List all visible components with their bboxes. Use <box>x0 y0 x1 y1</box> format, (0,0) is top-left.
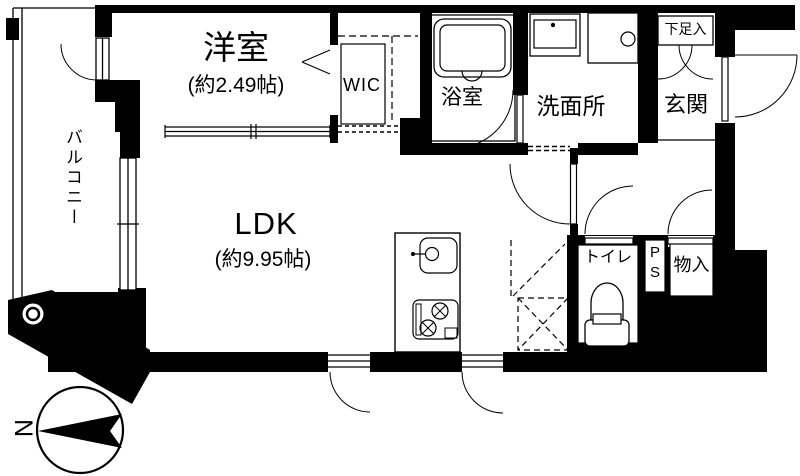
vanity-sink-icon <box>530 14 580 56</box>
kitchen-counter <box>395 233 460 352</box>
floor-plan-drawing <box>0 0 800 476</box>
drain-icon <box>21 302 45 326</box>
compass-north-label: N <box>10 413 36 443</box>
bathtub-icon <box>434 19 511 81</box>
compass-icon <box>37 387 123 473</box>
room-label-storage: 物入 <box>668 256 715 275</box>
room-label-shoe-storage: 下足入 <box>658 22 713 37</box>
room-area-western-room: (約2.49帖) <box>146 75 326 97</box>
room-label-washroom: 洗面所 <box>521 94 621 118</box>
pipe-space-line1: P <box>645 243 665 263</box>
room-label-ldk: LDK <box>196 208 336 241</box>
room-label-wic: WIC <box>332 76 392 95</box>
room-label-balcony: バルコニー <box>53 128 81 258</box>
windows <box>96 38 139 290</box>
fridge-space <box>511 240 568 350</box>
room-label-pipe-space: P S <box>645 243 665 284</box>
sliding-door-western-room <box>165 124 330 139</box>
room-label-western-room: 洋室 <box>156 31 316 66</box>
floor-plan: 洋室 (約2.49帖) WIC 浴室 洗面所 玄関 下足入 バルコニー LDK … <box>0 0 800 476</box>
bathroom-unit <box>430 15 515 141</box>
room-label-bathroom: 浴室 <box>422 87 502 109</box>
room-label-toilet: トイレ <box>576 250 640 267</box>
room-area-ldk: (約9.95帖) <box>173 249 353 271</box>
washer-pan-icon <box>588 13 638 63</box>
room-label-entrance: 玄関 <box>646 93 726 116</box>
pipe-space-line2: S <box>645 263 665 283</box>
